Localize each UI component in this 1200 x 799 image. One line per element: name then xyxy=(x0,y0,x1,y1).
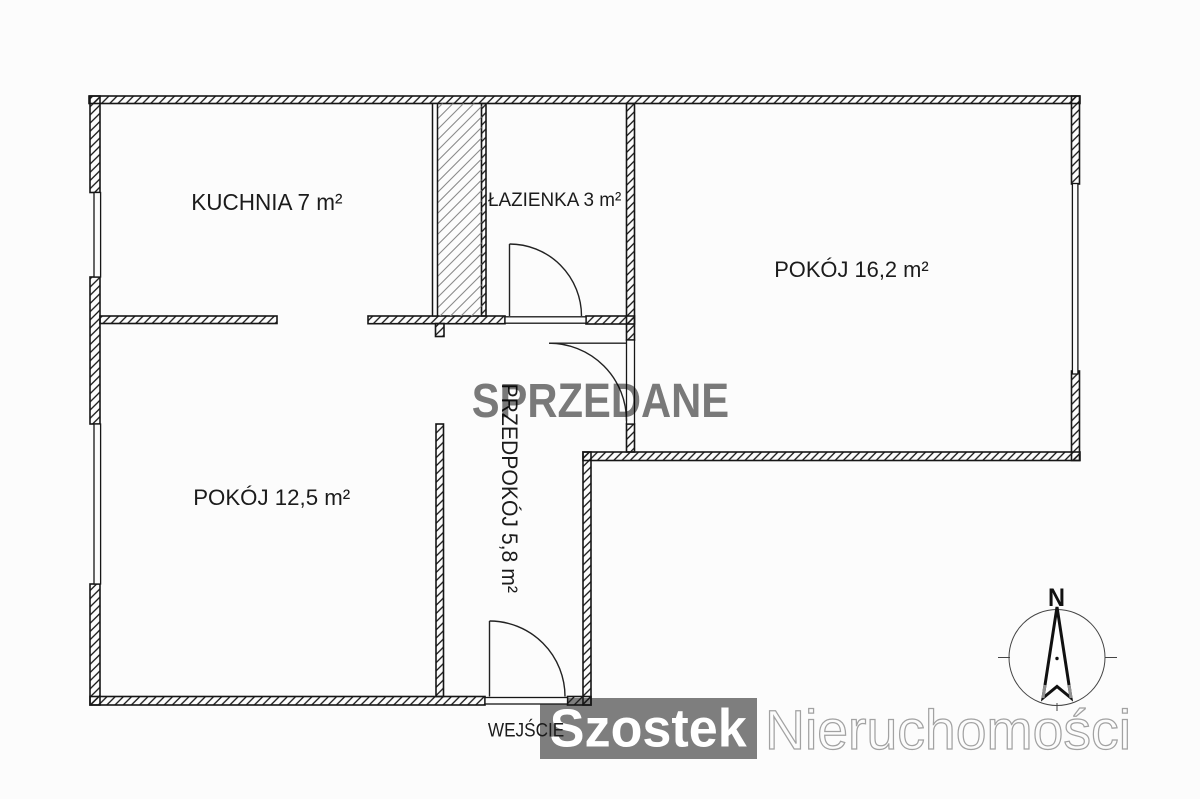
svg-text:KUCHNIA 7 m²: KUCHNIA 7 m² xyxy=(191,189,342,215)
svg-text:POKÓJ 16,2 m²: POKÓJ 16,2 m² xyxy=(774,257,929,282)
svg-text:N: N xyxy=(1048,584,1065,612)
svg-text:Nieruchomości: Nieruchomości xyxy=(765,698,1131,761)
svg-text:WEJŚCIE: WEJŚCIE xyxy=(488,718,564,742)
svg-text:ŁAZIENKA 3 m²: ŁAZIENKA 3 m² xyxy=(488,189,622,211)
svg-text:Szostek: Szostek xyxy=(550,698,748,758)
svg-text:SPRZEDANE: SPRZEDANE xyxy=(472,375,729,428)
svg-text:POKÓJ 12,5 m²: POKÓJ 12,5 m² xyxy=(193,485,350,510)
